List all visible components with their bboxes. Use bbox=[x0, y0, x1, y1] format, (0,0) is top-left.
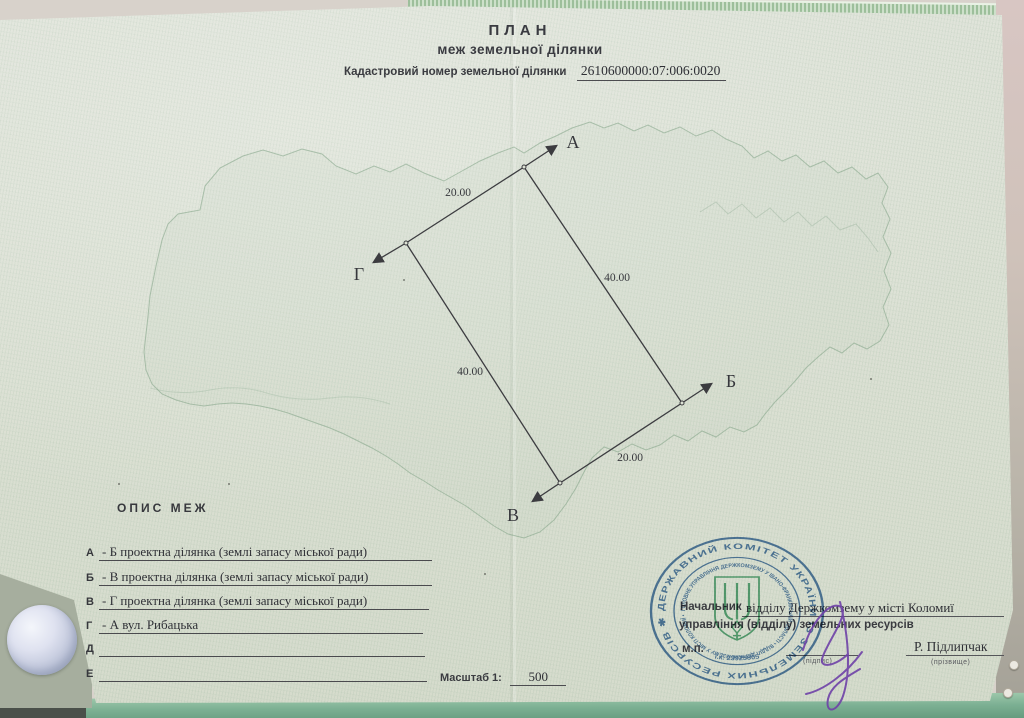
boundary-row-b: Б- В проектна ділянка (землі запасу місь… bbox=[86, 568, 432, 586]
paper-speck bbox=[403, 279, 405, 281]
position-underline bbox=[742, 616, 1004, 617]
official-position-filled: відділу Держкомзему у місті Коломиї bbox=[746, 600, 954, 616]
scale-value: 500 bbox=[510, 669, 566, 686]
paper-speck bbox=[484, 573, 486, 575]
boundary-letter: А bbox=[86, 547, 99, 559]
paper-speck bbox=[228, 483, 230, 485]
paper-speck bbox=[118, 483, 120, 485]
boundary-text bbox=[99, 665, 427, 682]
seal-place-abbr: м.п. bbox=[682, 643, 704, 655]
folder-snap-button bbox=[1003, 688, 1013, 698]
official-position-line2: управління (відділу) земельних ресурсів bbox=[679, 619, 914, 631]
document-header: ПЛАН меж земельної ділянки bbox=[320, 22, 720, 57]
boundaries-heading: ОПИС МЕЖ bbox=[117, 501, 208, 515]
boundary-letter: Д bbox=[86, 643, 99, 655]
holographic-sticker bbox=[7, 605, 77, 675]
folder-snap-button bbox=[1009, 660, 1019, 670]
page-subtitle: меж земельної ділянки bbox=[320, 42, 720, 57]
boundary-letter: Г bbox=[86, 620, 99, 632]
boundary-text: - В проектна ділянка (землі запасу міськ… bbox=[99, 569, 432, 586]
boundary-row-v: В- Г проектна ділянка (землі запасу місь… bbox=[86, 592, 429, 610]
boundary-letter: Е bbox=[86, 668, 99, 680]
boundary-text: - Б проектна ділянка (землі запасу міськ… bbox=[99, 544, 432, 561]
cadastral-number-line: Кадастровий номер земельної ділянки 2610… bbox=[344, 62, 726, 81]
boundary-text: - Г проектна ділянка (землі запасу міськ… bbox=[99, 593, 429, 610]
boundary-text: - А вул. Рибацька bbox=[99, 617, 423, 634]
boundary-row-g: Г- А вул. Рибацька bbox=[86, 616, 423, 634]
boundary-text bbox=[99, 640, 425, 657]
cadastral-number-label: Кадастровий номер земельної ділянки bbox=[344, 66, 566, 78]
signature-caption: (підпис) bbox=[803, 658, 832, 665]
scale-label: Масштаб 1: bbox=[440, 672, 502, 684]
surname-caption: (прізвище) bbox=[931, 659, 970, 666]
boundary-letter: Б bbox=[86, 572, 99, 584]
boundary-row-a: А- Б проектна ділянка (землі запасу місь… bbox=[86, 543, 432, 561]
boundary-letter: В bbox=[86, 596, 99, 608]
official-position-label: Начальник bbox=[680, 601, 742, 613]
boundary-row-e: Е bbox=[86, 664, 427, 682]
official-surname: Р. Підлипчак bbox=[914, 639, 987, 655]
photo-of-land-plan-document: ПЛАН меж земельної ділянки Кадастровий н… bbox=[0, 0, 1024, 718]
boundary-row-d: Д bbox=[86, 639, 425, 657]
surname-underline bbox=[906, 655, 1004, 656]
signature-underline bbox=[786, 655, 858, 656]
cadastral-number-value: 2610600000:07:006:0020 bbox=[577, 63, 727, 81]
paper-speck bbox=[870, 378, 872, 380]
page-title: ПЛАН bbox=[320, 22, 720, 39]
scale-line: Масштаб 1: 500 bbox=[440, 668, 566, 686]
